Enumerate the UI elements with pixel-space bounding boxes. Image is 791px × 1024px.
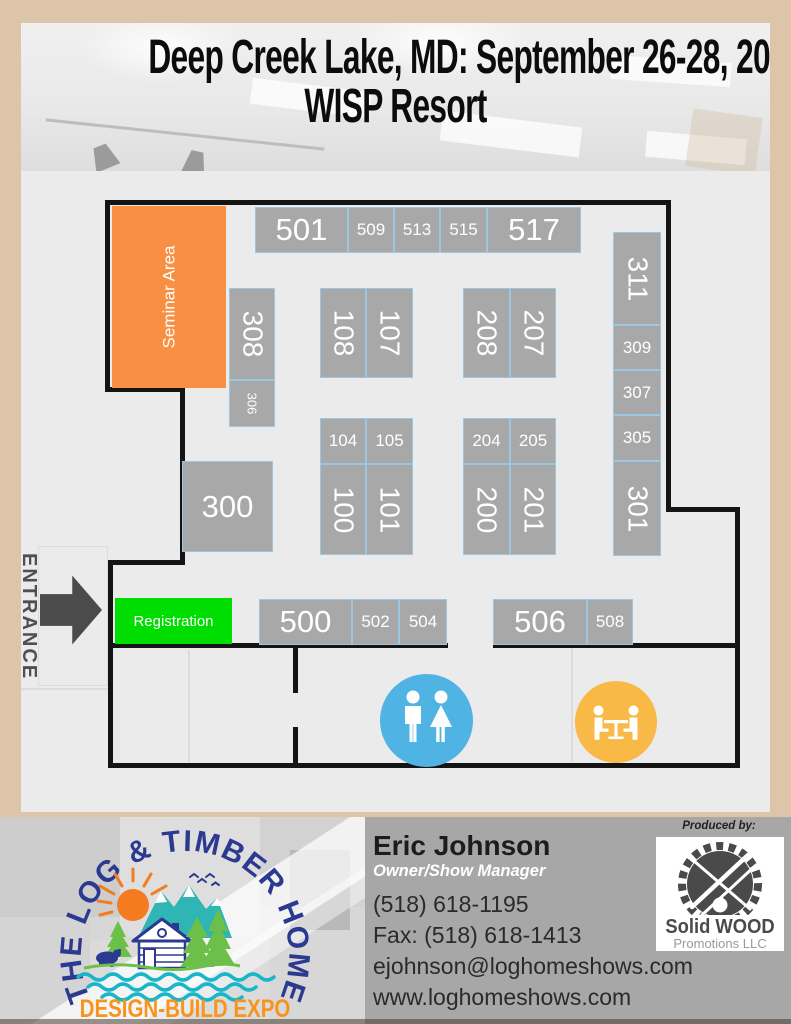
registration-label: Registration (133, 613, 213, 630)
dining-icon (575, 681, 657, 763)
wall-segment (666, 200, 671, 512)
booth-label: 101 (374, 486, 406, 533)
wall-segment (108, 560, 113, 768)
booth-label: 305 (623, 428, 651, 448)
wall-segment (293, 727, 298, 768)
producer-sub: Promotions LLC (673, 936, 766, 951)
saw-blade-icon: Solid WOOD Promotions LLC (656, 837, 784, 951)
booth-100: 100 (320, 464, 366, 555)
booth-501: 501 (255, 207, 348, 253)
booth-513: 513 (394, 207, 440, 253)
contact-name: Eric Johnson (373, 830, 550, 862)
booth-508: 508 (587, 599, 633, 645)
produced-by-label: Produced by: (656, 820, 782, 832)
booth-300: 300 (182, 461, 273, 552)
booth-label: 208 (471, 310, 503, 357)
booth-label: 500 (280, 604, 332, 640)
booth-label: 306 (244, 393, 259, 415)
booth-label: 108 (327, 310, 359, 357)
bottom-edge-strip (0, 1019, 791, 1024)
wall-segment (108, 560, 185, 565)
booth-label: 504 (409, 612, 437, 632)
booth-500: 500 (259, 599, 352, 645)
booth-label: 502 (361, 612, 389, 632)
contact-phone: (518) 618-1195 (373, 891, 529, 918)
booth-517: 517 (487, 207, 581, 253)
booth-label: 501 (276, 212, 328, 248)
booth-207: 207 (510, 288, 556, 378)
faint-line (21, 688, 108, 690)
logo-tagline: DESIGN-BUILD EXPO (80, 994, 291, 1020)
booth-201: 201 (510, 464, 556, 555)
booth-label: 105 (375, 431, 403, 451)
booth-label: 200 (471, 486, 503, 533)
wall-segment (105, 200, 671, 205)
booth-label: 506 (514, 604, 566, 640)
booth-509: 509 (348, 207, 394, 253)
booth-label: 307 (623, 383, 651, 403)
producer-logo-box: Solid WOOD Promotions LLC (656, 837, 784, 951)
booth-label: 107 (374, 310, 406, 357)
booth-108: 108 (320, 288, 366, 378)
booth-307: 307 (613, 370, 661, 415)
booth-101: 101 (366, 464, 413, 555)
header-photo: Deep Creek Lake, MD: September 26-28, 20… (21, 23, 770, 171)
booth-502: 502 (352, 599, 399, 645)
contact-fax: Fax: (518) 618-1413 (373, 922, 581, 949)
wall-segment (666, 507, 740, 512)
contact-role: Owner/Show Manager (373, 862, 545, 881)
booth-label: 517 (508, 212, 560, 248)
booth-311: 311 (613, 232, 661, 325)
booth-306: 306 (229, 380, 275, 427)
event-title: Deep Creek Lake, MD: September 26-28, 20… (21, 33, 770, 131)
expo-logo: THE LOG & TIMBER HOME (40, 825, 330, 1020)
booth-506: 506 (493, 599, 587, 645)
faint-line (571, 648, 573, 762)
restroom-icon (380, 674, 473, 767)
booth-label: 104 (329, 431, 357, 451)
booth-301: 301 (613, 461, 661, 556)
booth-204: 204 (463, 418, 510, 464)
booth-label: 204 (472, 431, 500, 451)
seminar-area-label: Seminar Area (159, 246, 179, 349)
booth-label: 515 (449, 220, 477, 240)
birds-icon (190, 874, 219, 885)
booth-label: 100 (327, 486, 359, 533)
booth-504: 504 (399, 599, 447, 645)
booth-label: 508 (596, 612, 624, 632)
wall-segment (105, 200, 110, 392)
booth-label: 301 (621, 485, 653, 532)
booth-515: 515 (440, 207, 487, 253)
booth-305: 305 (613, 415, 661, 461)
booth-105: 105 (366, 418, 413, 464)
booth-label: 205 (519, 431, 547, 451)
booth-label: 300 (202, 489, 254, 525)
booth-label: 311 (621, 256, 653, 301)
contact-website: www.loghomeshows.com (373, 984, 631, 1011)
faint-line (188, 650, 190, 762)
booth-309: 309 (613, 325, 661, 370)
booth-205: 205 (510, 418, 556, 464)
registration-desk: Registration (115, 598, 232, 644)
track-lamp-icon (87, 141, 120, 171)
booth-label: 207 (517, 310, 549, 357)
wall-segment (735, 507, 740, 768)
contact-email: ejohnson@loghomeshows.com (373, 953, 693, 980)
booth-104: 104 (320, 418, 366, 464)
booth-label: 201 (517, 486, 549, 533)
booth-107: 107 (366, 288, 413, 378)
flyer-page: Deep Creek Lake, MD: September 26-28, 20… (0, 0, 791, 1024)
wall-segment (293, 643, 298, 693)
track-lamp-icon (181, 149, 209, 171)
booth-label: 309 (623, 338, 651, 358)
booth-label: 513 (403, 220, 431, 240)
event-title-line1: Deep Creek Lake, MD: September 26-28, 20… (148, 33, 642, 82)
seminar-area: Seminar Area (112, 206, 226, 388)
booth-200: 200 (463, 464, 510, 555)
booth-label: 308 (236, 311, 268, 358)
entrance-label: ENTRANCE (14, 546, 40, 688)
producer-name: Solid WOOD (665, 916, 774, 938)
booth-label: 509 (357, 220, 385, 240)
booth-308: 308 (229, 288, 275, 380)
booth-208: 208 (463, 288, 510, 378)
event-title-line2: WISP Resort (148, 82, 642, 131)
